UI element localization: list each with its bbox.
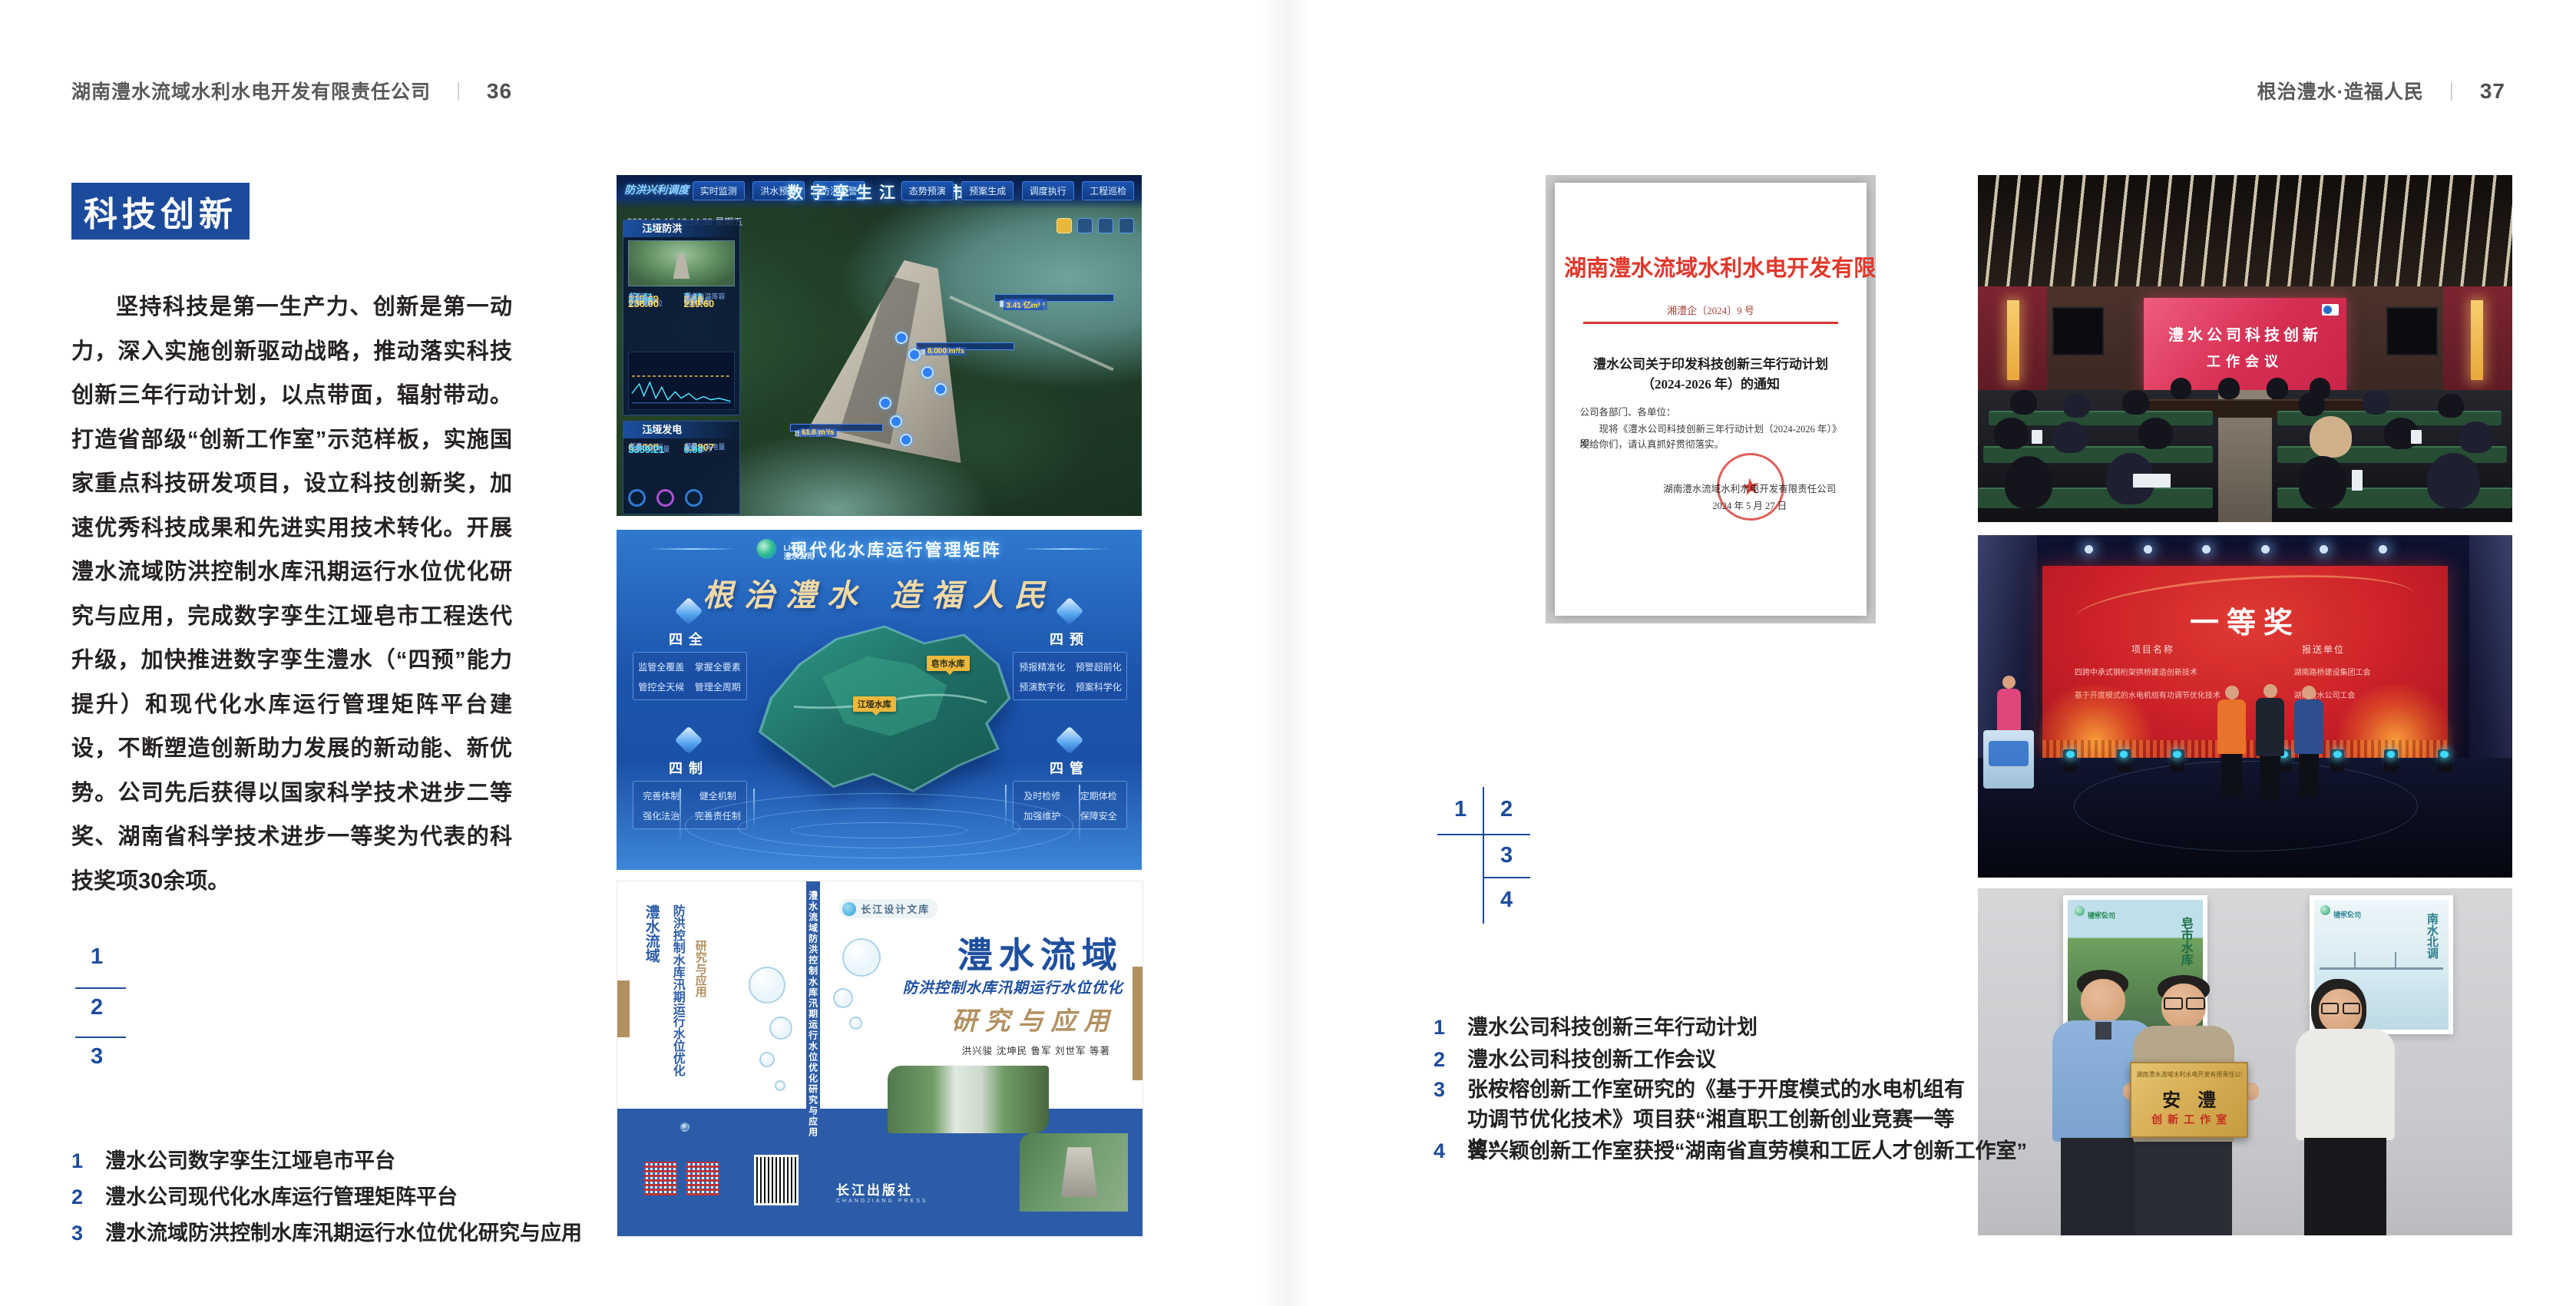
poster-left-calligraphy: 皂市水库	[2177, 917, 2195, 966]
audience-head	[2363, 390, 2389, 415]
audience-head	[2063, 394, 2090, 418]
qr-code	[686, 1162, 719, 1195]
spotlight	[2261, 545, 2270, 554]
caption-number: 2	[71, 1185, 105, 1209]
award-title: 一等奖	[2042, 599, 2449, 641]
host-podium	[1983, 730, 2034, 789]
brand-logo-icon	[842, 902, 856, 916]
water-bottle	[2352, 470, 2363, 491]
water-droplet	[842, 938, 881, 977]
panel-item: 管控全天候	[633, 680, 690, 693]
page-number-left: 36	[487, 79, 512, 103]
floor-arc	[2074, 761, 2417, 851]
man-left-pants	[2061, 1138, 2146, 1235]
gauge-icon	[656, 489, 674, 507]
front-tan-ribbon	[1133, 967, 1143, 1080]
caption-number: 2	[1433, 1048, 1467, 1072]
body-paragraph: 坚持科技是第一生产力、创新是第一动力，深入实施创新驱动战略，推动落实科技创新三年…	[71, 286, 512, 904]
rostrum-person	[2267, 378, 2288, 398]
platform-badge: 防洪兴利调度	[624, 182, 689, 197]
figure-official-document: 湖南澧水流域水利水电开发有限责任公司文件 湘澧企〔2024〕9 号 澧水公司关于…	[1546, 175, 1876, 623]
audience-head	[2005, 456, 2053, 508]
index-divider	[75, 987, 126, 989]
caption-number: 1	[71, 1149, 105, 1173]
tab-project-inspection: 工程巡检	[1082, 181, 1134, 200]
panel-title: 四制	[633, 758, 746, 778]
audience-person-beige	[2310, 416, 2353, 458]
caption-number: 3	[71, 1222, 105, 1245]
lhpc-logo-icon	[2075, 906, 2085, 916]
wall-lamp	[2471, 300, 2482, 380]
index-divider	[75, 1037, 126, 1038]
caption-row: 1澧水公司数字孪生江垭皂市平台	[71, 1144, 395, 1174]
panel-box: 监管全覆盖 掌握全要素 管控全天候 管理全周期	[633, 652, 747, 700]
light-pillar	[1079, 785, 1080, 846]
back-cover-title: 澧水流域 防洪控制水库汛期运行水位优化 研究与应用	[641, 904, 709, 1076]
recipient-orange	[2217, 699, 2247, 754]
recipient-legs	[2299, 754, 2319, 798]
red-stamp: ★	[1712, 448, 1788, 524]
alert-icon	[1119, 218, 1134, 233]
index-divider	[1437, 834, 1530, 835]
audience-head	[2138, 418, 2173, 449]
figure-digital-twin-platform: 防洪兴利调度 实时监测 洪水预报 防洪预警 数字孪生江垭皂市 态势预演 预案生成…	[617, 175, 1142, 516]
caption-row: 3澧水流域防洪控制水库汛期运行水位优化研究与应用	[71, 1216, 582, 1246]
figure-meeting-photo: 澧水公司科技创新 工作会议	[1978, 175, 2512, 522]
spotlight	[2379, 545, 2387, 554]
document-page: 湖南澧水流域水利水电开发有限责任公司文件 湘澧企〔2024〕9 号 澧水公司关于…	[1555, 183, 1867, 616]
locate-icon	[1098, 218, 1113, 233]
recipient-blue	[2294, 699, 2323, 754]
water-droplet	[749, 967, 785, 1003]
audience-head	[2299, 392, 2326, 417]
presenter-head	[2264, 684, 2277, 698]
header-company: 湖南澧水流域水利水电开发有限责任公司	[71, 81, 431, 103]
spotlight	[2085, 545, 2093, 554]
spine-title: 澧水流域防洪控制水库汛期运行水位优化研究与应用	[807, 891, 820, 1138]
dam-thumbnail	[628, 240, 734, 286]
power-panel: 江垭发电 年发电计划6.3000亿度 年累计发电量1.2907亿度 月累计发电量…	[623, 421, 739, 514]
dam-face	[1061, 1147, 1098, 1197]
qr-code	[643, 1162, 677, 1195]
header-divider: ｜	[2442, 82, 2462, 103]
podium-sign	[1989, 741, 2029, 766]
bridge-pylon	[2354, 952, 2356, 967]
logo-top: LHPC	[783, 544, 804, 553]
water-droplet	[833, 988, 853, 1008]
water-level-chart	[628, 352, 734, 410]
gate-marker	[879, 397, 891, 409]
back-title-2: 防洪控制水库汛期运行水位优化	[668, 904, 686, 1076]
light-pillar	[1005, 785, 1007, 829]
plaque-header: 湖南澧水流域水利水电开发有限责任公司	[2136, 1070, 2242, 1079]
panel-item: 监管全覆盖	[633, 660, 690, 673]
book-title-main: 澧水流域	[957, 927, 1123, 978]
book-title-sub: 防洪控制水库汛期运行水位优化	[903, 975, 1123, 997]
poster-logo: LHPC 澧水公司	[2075, 906, 2088, 916]
panel-title: 四管	[1013, 758, 1126, 778]
caption-number: 4	[1433, 1139, 1467, 1163]
glasses-icon	[2164, 997, 2183, 1010]
barcode	[754, 1155, 799, 1205]
header-left: 湖南澧水流域水利水电开发有限责任公司 ｜ 36	[71, 77, 512, 104]
panel-item: 掌握全要素	[689, 660, 746, 673]
tab-situation-preview: 态势预演	[901, 181, 954, 200]
glasses-icon	[2343, 1003, 2360, 1014]
figure-index-2: 2	[1500, 797, 1513, 822]
callout-reservoir: 总库容量17.41 亿m³ 蓄水量8.10 亿m³ 防洪库容3.41 亿m³ 剩…	[994, 294, 1114, 302]
document-number: 湘澧企〔2024〕9 号	[1555, 303, 1867, 317]
document-red-header: 湖南澧水流域水利水电开发有限责任公司文件	[1564, 250, 1857, 283]
brand-row: 长江设计文库	[839, 899, 937, 918]
screen-title-line2: 工作会议	[2144, 351, 2346, 371]
spotlight	[2144, 545, 2152, 554]
figure-group-photo: LHPC 澧水公司 皂市水库 LHPC 澧水公司 南水北调 湖南澧水流域水	[1978, 888, 2512, 1235]
glasses-icon	[2321, 1003, 2339, 1014]
map-tag-jiangya: 江垭水库	[853, 696, 896, 712]
platform-toolbar-icons	[1051, 218, 1134, 237]
caption-row: 2澧水公司现代化水库运行管理矩阵平台	[71, 1180, 458, 1210]
glasses-icon	[2186, 997, 2205, 1010]
audience-head	[2122, 390, 2149, 415]
water-droplet	[849, 1017, 862, 1030]
caption-text: 澧水公司科技创新三年行动计划	[1467, 1016, 1758, 1039]
stat-unit: m	[685, 298, 690, 305]
tab-realtime-monitor: 实时监测	[693, 181, 745, 200]
audience-head	[2459, 422, 2493, 453]
lhpc-logo-icon	[756, 539, 776, 559]
woman-white-top	[2296, 1029, 2395, 1140]
poster-right-calligraphy: 南水北调	[2425, 913, 2441, 959]
screen-logo	[2322, 304, 2339, 316]
caption-number: 1	[1433, 1016, 1467, 1040]
bridge-pylon	[2395, 952, 2396, 967]
figure-award-ceremony: 一等奖 项目名称 报送单位 四跨中承式钢桁架拱桥建造创新技术 湖南路桥建设集团工…	[1978, 535, 2512, 878]
matrix-header: LHPC澧水公司 现代化水库运行管理矩阵	[756, 537, 1001, 561]
panel-box: 预报精准化 预警超前化 预演数字化 预案科学化	[1013, 652, 1127, 700]
screen-title-line1: 澧水公司科技创新	[2144, 322, 2346, 345]
panel-item: 预警超前化	[1070, 660, 1127, 673]
gate-marker	[921, 366, 934, 379]
header-wing-line	[1021, 548, 1110, 550]
stat-unit: m	[630, 298, 635, 305]
plaque-title: 安澧	[2131, 1085, 2247, 1112]
chart-svg	[629, 352, 733, 409]
panel-title: 四预	[1013, 629, 1126, 649]
header-divider: ｜	[449, 82, 468, 103]
cover-photo-dam	[1020, 1133, 1128, 1212]
gauge-icon	[685, 489, 703, 507]
panel-items: 监管全覆盖 掌握全要素 管控全天候 管理全周期	[633, 660, 746, 693]
figure-index-2: 2	[91, 995, 103, 1020]
light-pillar	[753, 789, 755, 829]
index-divider-vertical	[1483, 787, 1484, 924]
platform-tabs-right: 态势预演 预案生成 调度执行 工程巡检	[899, 181, 1136, 200]
brochure-spread: { "headers": { "left_company": "湖南澧水流域水利…	[0, 0, 2576, 1306]
document-body-line2: 发给你们，请认真抓好贯彻落实。	[1579, 436, 1841, 451]
water-bottle	[2032, 430, 2042, 444]
column-org: 报送单位	[2302, 643, 2345, 656]
document-title-line1: 澧水公司关于印发科技创新三年行动计划	[1555, 353, 1867, 372]
man-center-pants	[2135, 1142, 2231, 1235]
document-salutation: 公司各部门、各单位：	[1579, 404, 1841, 418]
polo-collar	[2095, 1022, 2111, 1040]
man-left-head	[2081, 979, 2125, 1024]
panel-item: 预案科学化	[1070, 680, 1127, 693]
stage-light	[2330, 749, 2344, 772]
map-tag-zaoshi: 皂市水库	[927, 656, 970, 671]
figure-index-3: 3	[91, 1044, 103, 1070]
back-title-1: 澧水流域	[641, 904, 662, 1076]
audience-head	[2427, 453, 2481, 508]
water-droplet	[769, 1017, 792, 1040]
stat-unit: MW	[685, 444, 696, 451]
page-number-right: 37	[2480, 79, 2505, 103]
panel-icon	[1056, 726, 1084, 755]
caption-row: 4曾兴颖创新工作室获授“湖南省直劳模和工匠人才创新工作室”	[1433, 1134, 2027, 1164]
column-project: 项目名称	[2131, 643, 2174, 656]
woman-pants	[2304, 1138, 2387, 1235]
figure-matrix-platform: LHPC澧水公司 现代化水库运行管理矩阵 根治澧水 造福人民 皂市水库 江垭水库…	[617, 530, 1142, 870]
caption-text: 曾兴颖创新工作室获授“湖南省直劳模和工匠人才创新工作室”	[1467, 1139, 2027, 1162]
callout-upstream: 坝上水位236.69 m 入库流量8.000 m³/s	[916, 342, 1014, 350]
plaque-subtitle: 创新工作室	[2131, 1112, 2247, 1127]
figure-index-1: 1	[1454, 797, 1467, 822]
stage-light	[2171, 749, 2184, 772]
publisher-name-en: CHANGJIANG PRESS	[836, 1199, 928, 1204]
callout-value: 8.000 m³/s	[925, 347, 967, 355]
caption-number: 3	[1433, 1075, 1467, 1105]
logo-sub: 澧水公司	[783, 553, 814, 561]
panel-icon	[675, 597, 703, 626]
stamp-star-icon: ★	[1738, 472, 1763, 501]
light-pillar	[680, 789, 681, 843]
user-icon	[1057, 218, 1072, 233]
page-gutter-shadow	[1259, 0, 1313, 1306]
award-row-org: 湖南路桥建设集团工会	[2293, 666, 2370, 677]
water-droplet	[759, 1052, 775, 1067]
stage-rings	[659, 785, 1100, 866]
host-head	[2002, 676, 2015, 689]
logo-sub: 澧水公司	[2088, 911, 2115, 921]
gate-marker	[934, 383, 947, 395]
gate-marker	[890, 415, 902, 428]
stage-light	[2384, 749, 2398, 772]
audience-head	[2010, 390, 2037, 415]
stage-light	[2438, 749, 2452, 772]
caption-text: 澧水公司现代化水库运行管理矩阵平台	[105, 1185, 458, 1208]
document-title-line2: （2024-2026 年）的通知	[1555, 373, 1867, 392]
wall-tv	[2386, 307, 2438, 355]
stage-light	[2063, 749, 2077, 772]
matrix-title: 现代化水库运行管理矩阵	[790, 537, 1001, 561]
back-title-3: 研究与应用	[693, 940, 709, 1076]
logo-sub: 澧水公司	[2333, 910, 2361, 920]
layers-icon	[1077, 218, 1093, 233]
flood-panel-title: 江垭防洪	[623, 220, 739, 237]
document-red-rule	[1583, 322, 1839, 324]
wall-lamp	[2007, 300, 2019, 380]
stat-unit: 万度	[630, 444, 642, 452]
flood-stats-grid: 总库容17.41亿m³ 剩余防洪库容7.41亿m³ 坝上水位215.69m 蓄水…	[628, 291, 734, 298]
flood-panel: 江垭防洪 总库容17.41亿m³ 剩余防洪库容7.41亿m³ 坝上水位215.6…	[623, 220, 739, 415]
figure-index-3: 3	[1500, 843, 1513, 868]
figure-index-1: 1	[91, 944, 103, 970]
power-panel-title: 江垭发电	[623, 422, 739, 438]
power-stats-grid: 年发电计划6.3000亿度 年累计发电量1.2907亿度 月累计发电量3359.…	[628, 441, 734, 444]
book-title-tail: 研究与应用	[951, 1000, 1116, 1037]
award-plaque: 湖南澧水流域水利水电开发有限责任公司 安澧 创新工作室	[2130, 1062, 2248, 1138]
gauge-row	[628, 489, 713, 511]
figure-book-cover: 澧水流域 防洪控制水库汛期运行水位优化 研究与应用 澧水流域防洪控制水库汛期运行…	[617, 881, 1143, 1237]
award-row-project: 四跨中承式钢桁架拱桥建造创新技术	[2075, 666, 2197, 677]
header-slogan: 根治澧水·造福人民	[2257, 81, 2424, 103]
panel-item: 管理全周期	[689, 680, 746, 693]
poster-logo: LHPC 澧水公司	[2320, 905, 2333, 915]
tab-plan-generation: 预案生成	[961, 181, 1014, 200]
panel-icon	[675, 726, 703, 755]
audience-head	[2438, 394, 2465, 418]
callout-value: 61.8 m³/s	[799, 428, 837, 437]
panel-items: 预报精准化 预警超前化 预演数字化 预案科学化	[1014, 660, 1126, 693]
dam-thumb-shape	[673, 254, 690, 279]
presenter-legs	[2260, 756, 2280, 801]
audience-head	[1994, 418, 2029, 449]
recipient-head	[2225, 686, 2239, 699]
callout-value: 3.41 亿m³	[1004, 299, 1042, 310]
screen-logo-dot	[2323, 306, 2332, 314]
rostrum-person	[2218, 378, 2240, 398]
gauge-icon	[628, 489, 646, 507]
book-authors: 洪兴骏 沈坤民 鲁军 刘世军 等著	[962, 1043, 1110, 1057]
presenter-suit	[2256, 698, 2285, 756]
header-right: 根治澧水·造福人民 ｜ 37	[2257, 77, 2505, 104]
caption-row: 1澧水公司科技创新三年行动计划	[1433, 1010, 1758, 1040]
book-spine: 澧水流域防洪控制水库汛期运行水位优化研究与应用	[806, 881, 820, 1236]
lhpc-logo-icon	[2320, 905, 2330, 915]
spotlight	[2320, 545, 2328, 554]
water-droplet	[775, 1080, 785, 1091]
cover-photo-valley	[888, 1066, 1049, 1133]
spotlight	[2202, 545, 2211, 554]
gate-marker	[908, 349, 921, 361]
rostrum-person	[2171, 378, 2192, 398]
caption-row: 2澧水公司科技创新工作会议	[1433, 1043, 1716, 1073]
callout-downstream: 坝下水位186.19 m 出库流量61.8 m³/s	[790, 424, 883, 431]
panel-item: 预演数字化	[1014, 680, 1070, 693]
tissue-box	[2133, 474, 2171, 488]
caption-text: 澧水公司数字孪生江垭皂市平台	[105, 1149, 395, 1172]
header-wing-line	[648, 548, 737, 550]
caption-text: 澧水流域防洪控制水库汛期运行水位优化研究与应用	[105, 1222, 582, 1245]
publisher-name: 长江出版社	[836, 1183, 913, 1199]
section-title: 科技创新	[71, 183, 250, 240]
panel-icon	[1056, 597, 1084, 626]
brand-text: 长江设计文库	[861, 901, 930, 916]
recipient-head	[2302, 686, 2316, 699]
index-divider	[1483, 877, 1530, 878]
panel-title: 四全	[633, 629, 746, 649]
wall-tv	[2052, 307, 2104, 355]
panel-item: 预报精准化	[1014, 660, 1070, 673]
audience-head	[2052, 422, 2087, 453]
front-cover: 长江设计文库 澧水流域 防洪控制水库汛期运行水位优化 研究与应用 洪兴骏 沈坤民…	[820, 881, 1143, 1236]
gate-marker	[895, 332, 908, 344]
recipient-legs	[2221, 754, 2241, 798]
publisher-block: 长江出版社 CHANGJIANG PRESS	[836, 1179, 928, 1204]
water-bottle	[2411, 430, 2422, 444]
caption-text: 澧水公司科技创新工作会议	[1467, 1048, 1716, 1071]
bridge-line	[2320, 967, 2444, 970]
audience-head	[2299, 456, 2347, 508]
figure-index-4: 4	[1500, 888, 1513, 913]
tab-dispatch-execution: 调度执行	[1022, 181, 1074, 200]
back-tan-tab	[617, 980, 630, 1037]
stage-light	[2117, 749, 2131, 772]
